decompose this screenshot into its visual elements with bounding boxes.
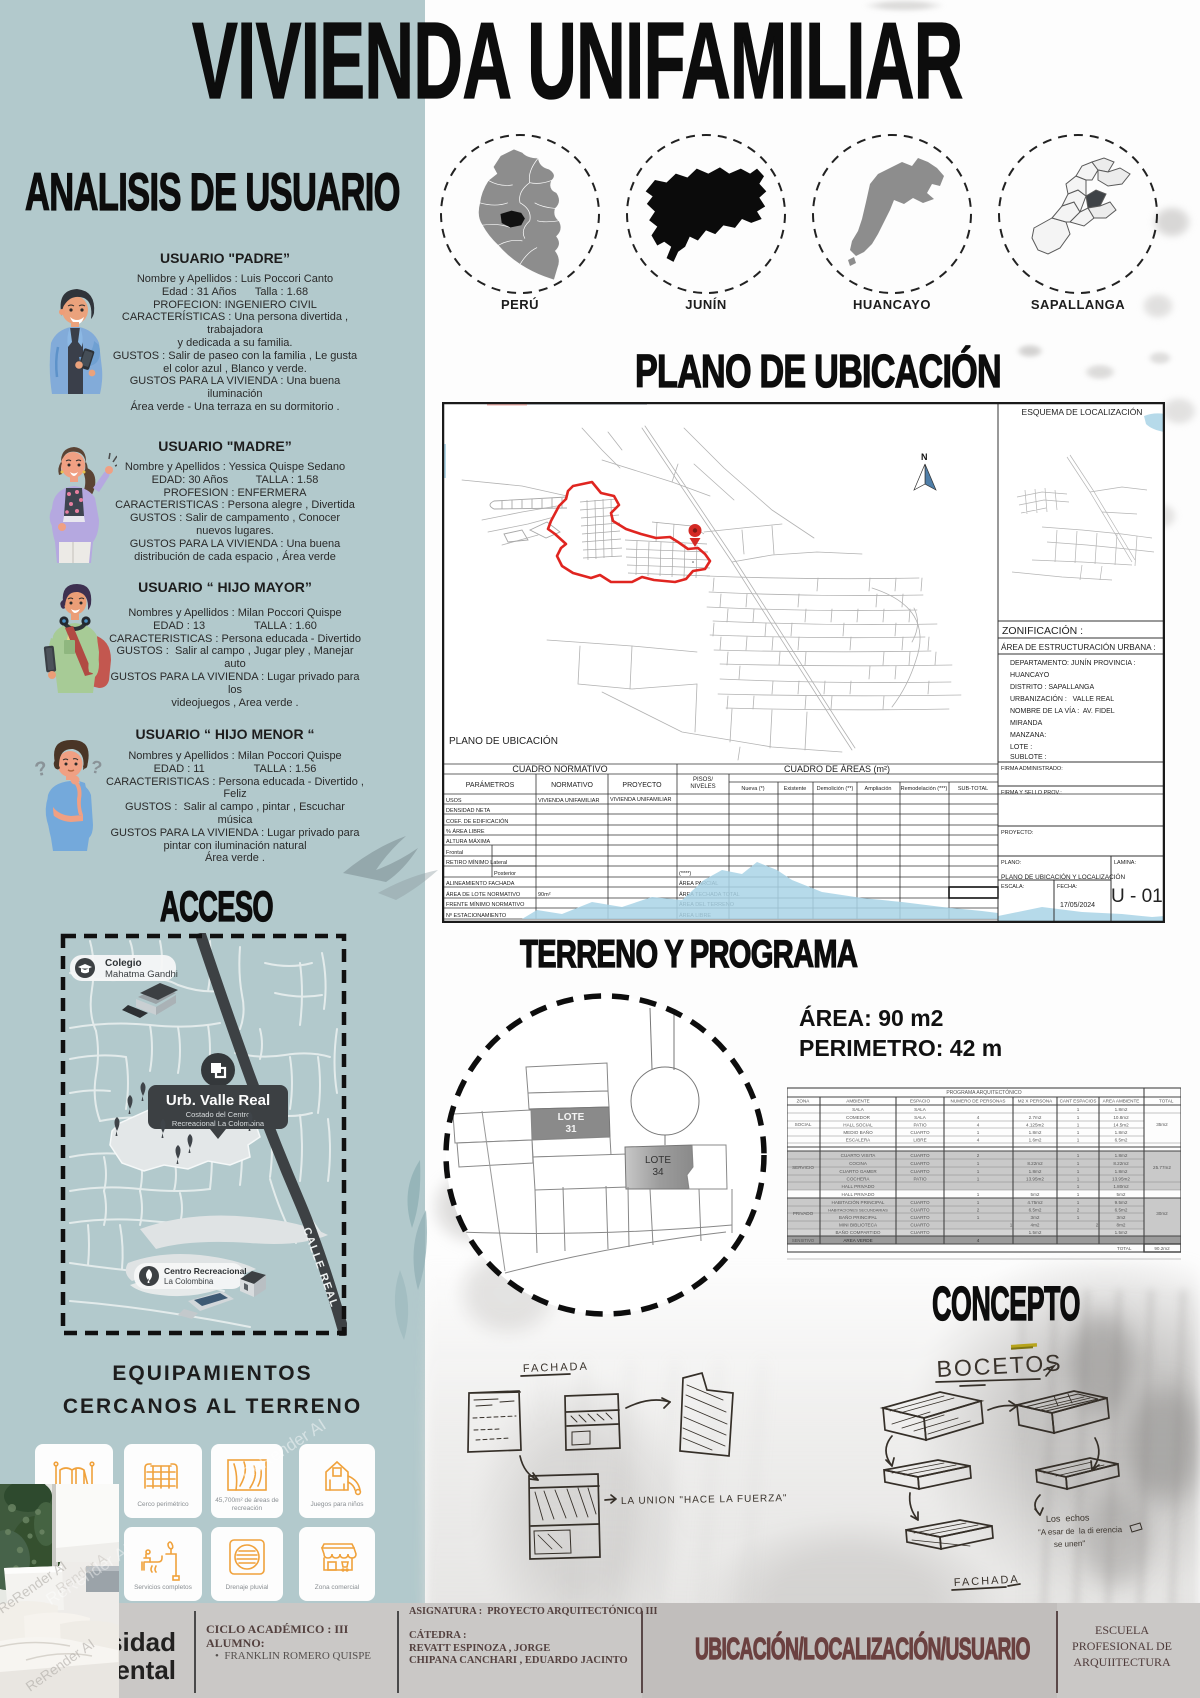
svg-text:1.8m2: 1.8m2 <box>1115 1130 1128 1135</box>
svg-text:AREA VERDE: AREA VERDE <box>843 1238 872 1243</box>
svg-text:recreación: recreación <box>232 1505 263 1512</box>
svg-text:DENSIDAD NETA: DENSIDAD NETA <box>446 808 491 814</box>
svg-text:FECHA:: FECHA: <box>1057 884 1078 890</box>
svg-text:ESCALA:: ESCALA: <box>1001 884 1025 890</box>
svg-text:1: 1 <box>1077 1107 1080 1112</box>
svg-text:1.8m2: 1.8m2 <box>1029 1130 1042 1135</box>
svg-text:2.7m2: 2.7m2 <box>1029 1115 1042 1120</box>
svg-text:1: 1 <box>977 1177 980 1182</box>
svg-text:Nº ESTACIONAMIENTO: Nº ESTACIONAMIENTO <box>446 912 507 919</box>
svg-text:1: 1 <box>1010 1223 1013 1228</box>
svg-text:1: 1 <box>1077 1200 1080 1205</box>
svg-text:2: 2 <box>977 1153 980 1158</box>
svg-text:6.5m2: 6.5m2 <box>1115 1138 1128 1143</box>
svg-text:SERVICIO: SERVICIO <box>792 1165 814 1170</box>
svg-text:Colegio: Colegio <box>105 958 142 969</box>
svg-text:30m2: 30m2 <box>1156 1211 1168 1216</box>
svg-text:1.8m2: 1.8m2 <box>1115 1169 1128 1174</box>
svg-text:NORMATIVO: NORMATIVO <box>551 782 593 789</box>
svg-text:Existente: Existente <box>784 786 807 792</box>
svg-text:CUARTO: CUARTO <box>910 1208 930 1213</box>
svg-text:DISTRITO : SAPALLANGA: DISTRITO : SAPALLANGA <box>1010 684 1094 691</box>
svg-text:1: 1 <box>1077 1177 1080 1182</box>
svg-text:1: 1 <box>1077 1161 1080 1166</box>
svg-text:1.8m2: 1.8m2 <box>1115 1107 1128 1112</box>
svg-text:CUARTO: CUARTO <box>910 1223 930 1228</box>
svg-text:17/05/2024: 17/05/2024 <box>1060 902 1095 909</box>
svg-text:1.5m2: 1.5m2 <box>1029 1230 1042 1235</box>
svg-text:Centro Recreacional: Centro Recreacional <box>164 1266 247 1276</box>
svg-text:Zona comercial: Zona comercial <box>315 1584 360 1591</box>
svg-text:Nueva (*): Nueva (*) <box>741 786 764 792</box>
svg-text:13.95m2: 13.95m2 <box>1112 1177 1130 1182</box>
svg-text:?: ? <box>35 757 49 781</box>
svg-text:ESPACIO: ESPACIO <box>910 1099 931 1104</box>
svg-text:Ampliación: Ampliación <box>865 786 892 792</box>
svg-text:CUARTO: CUARTO <box>910 1230 930 1235</box>
svg-text:SUBLOTE :: SUBLOTE : <box>1010 754 1047 761</box>
svg-text:BOCETOS: BOCETOS <box>936 1349 1063 1382</box>
svg-text:Costado del Centro: Costado del Centro <box>186 1110 251 1119</box>
svg-text:LAMINA:: LAMINA: <box>1114 860 1136 866</box>
svg-text:se unen": se unen" <box>1054 1539 1086 1549</box>
svg-text:1: 1 <box>977 1192 980 1197</box>
svg-text:SALA: SALA <box>852 1107 865 1112</box>
svg-text:HALL PRIVADO: HALL PRIVADO <box>842 1192 875 1197</box>
svg-text:PRIVADO: PRIVADO <box>793 1211 814 1216</box>
svg-text:1: 1 <box>1077 1184 1080 1189</box>
svg-text:TOTAL: TOTAL <box>1117 1246 1132 1251</box>
svg-text:Drenaje pluvial: Drenaje pluvial <box>226 1584 270 1591</box>
svg-text:1: 1 <box>1077 1130 1080 1135</box>
svg-text:NOMBRE DE LA VÍA : AV. FIDEL: NOMBRE DE LA VÍA : AV. FIDEL <box>1010 706 1115 715</box>
svg-text:6.5m2: 6.5m2 <box>1029 1208 1042 1213</box>
svg-text:"A esar de la di erencia: "A esar de la di erencia <box>1038 1525 1123 1537</box>
svg-text:1.8m2: 1.8m2 <box>1115 1153 1128 1158</box>
svg-text:COEF. DE EDIFICACIÓN: COEF. DE EDIFICACIÓN <box>446 818 508 825</box>
svg-text:PATIO: PATIO <box>913 1177 927 1182</box>
svg-text:SALA: SALA <box>914 1115 927 1120</box>
svg-text:LOTE: LOTE <box>645 1155 671 1166</box>
svg-text:CUARTO: CUARTO <box>910 1161 930 1166</box>
svg-text:8.22m2: 8.22m2 <box>1113 1161 1129 1166</box>
svg-text:PROYECTO:: PROYECTO: <box>1001 830 1034 836</box>
svg-text:HALL PRIVADO: HALL PRIVADO <box>842 1184 875 1189</box>
svg-text:4: 4 <box>977 1115 980 1120</box>
svg-text:PLANO DE UBICACIÓN: PLANO DE UBICACIÓN <box>449 734 558 747</box>
svg-text:4.75m2: 4.75m2 <box>1027 1200 1043 1205</box>
svg-text:ALINEAMIENTO FACHADA: ALINEAMIENTO FACHADA <box>446 881 515 887</box>
svg-text:CUARTO: CUARTO <box>910 1130 930 1135</box>
svg-text:FRENTE MÍNIMO NORMATIVO: FRENTE MÍNIMO NORMATIVO <box>446 901 525 908</box>
svg-text:?: ? <box>89 756 103 778</box>
svg-text:URBANIZACIÓN : VALLE REAL: URBANIZACIÓN : VALLE REAL <box>1010 694 1114 703</box>
svg-text:DEPARTAMENTO: JUNÍN PROVINCIA: DEPARTAMENTO: JUNÍN PROVINCIA : <box>1010 658 1136 667</box>
svg-text:8.22m2: 8.22m2 <box>1027 1161 1043 1166</box>
svg-text:4: 4 <box>977 1238 980 1243</box>
svg-text:Los echos: Los echos <box>1046 1512 1090 1524</box>
svg-text:HABITACIÓN PRINCIPAL: HABITACIÓN PRINCIPAL <box>832 1199 885 1205</box>
svg-text:CUARTO: CUARTO <box>910 1215 930 1220</box>
svg-text:35m2: 35m2 <box>1156 1122 1168 1127</box>
svg-text:9.5m2: 9.5m2 <box>1115 1200 1128 1205</box>
svg-text:1: 1 <box>977 1200 980 1205</box>
svg-text:25.77m2: 25.77m2 <box>1153 1165 1171 1170</box>
svg-text:Posterior: Posterior <box>494 871 516 877</box>
svg-text:90.2m2: 90.2m2 <box>1154 1246 1170 1251</box>
svg-text:1.80m2: 1.80m2 <box>1113 1184 1129 1189</box>
svg-text:ZONIFICACIÓN :: ZONIFICACIÓN : <box>1002 624 1083 637</box>
svg-text:ZONA: ZONA <box>797 1099 811 1104</box>
svg-text:10.8m2: 10.8m2 <box>1113 1115 1129 1120</box>
svg-text:1: 1 <box>977 1161 980 1166</box>
svg-text:HALL SOCIAL: HALL SOCIAL <box>843 1123 873 1128</box>
svg-text:1: 1 <box>1077 1115 1080 1120</box>
svg-text:TOTAL: TOTAL <box>1159 1099 1174 1104</box>
svg-text:PLANO:: PLANO: <box>1001 860 1022 866</box>
svg-text:MANZANA:: MANZANA: <box>1010 732 1046 739</box>
svg-text:La Colombina: La Colombina <box>164 1277 214 1286</box>
svg-text:CANT ESPACIOS: CANT ESPACIOS <box>1060 1099 1097 1104</box>
svg-text:45,700m² de áreas de: 45,700m² de áreas de <box>215 1497 279 1504</box>
svg-text:BAÑO PRINCIPAL: BAÑO PRINCIPAL <box>839 1214 878 1220</box>
svg-text:Frontal: Frontal <box>446 850 463 856</box>
svg-text:ÁREA DE LOTE NORMATIVO: ÁREA DE LOTE NORMATIVO <box>446 891 521 898</box>
svg-text:1.5m2: 1.5m2 <box>1115 1230 1128 1235</box>
svg-text:FACHADA: FACHADA <box>954 1574 1021 1589</box>
svg-text:MINI BIBLIOTECA: MINI BIBLIOTECA <box>839 1223 878 1228</box>
svg-text:FIRMA ADMINISTRADO:: FIRMA ADMINISTRADO: <box>1001 766 1063 772</box>
svg-text:USOS: USOS <box>446 798 462 804</box>
svg-text:HABITACIONES SECUNDARIAS: HABITACIONES SECUNDARIAS <box>828 1208 888 1213</box>
svg-text:NIVELES: NIVELES <box>690 784 715 790</box>
svg-text:CALLE REAL: CALLE REAL <box>300 1226 340 1310</box>
svg-text:% ÁREA LIBRE: % ÁREA LIBRE <box>446 828 485 835</box>
svg-text:CUARTO: CUARTO <box>910 1200 930 1205</box>
svg-text:AMBIENTE: AMBIENTE <box>846 1099 869 1104</box>
svg-text:Remodelación (***): Remodelación (***) <box>901 786 948 792</box>
svg-text:4: 4 <box>977 1123 980 1128</box>
svg-text:CUARTO: CUARTO <box>910 1153 930 1158</box>
svg-text:CUARTO GAMER: CUARTO GAMER <box>839 1169 877 1174</box>
svg-text:FACHADA: FACHADA <box>523 1361 589 1375</box>
svg-text:PLANO DE UBICACIÓN Y LOCALIZAC: PLANO DE UBICACIÓN Y LOCALIZACIÓN <box>1001 872 1125 881</box>
svg-text:14.5m2: 14.5m2 <box>1113 1123 1129 1128</box>
svg-text:(****): (****) <box>679 871 691 877</box>
svg-text:31: 31 <box>565 1124 577 1135</box>
svg-text:1: 1 <box>977 1169 980 1174</box>
svg-text:CUARTO VISITA: CUARTO VISITA <box>841 1153 877 1158</box>
svg-text:PISOS/: PISOS/ <box>693 777 713 783</box>
svg-text:N: N <box>921 452 928 462</box>
svg-text:2: 2 <box>977 1208 980 1213</box>
svg-text:5m2: 5m2 <box>1031 1192 1040 1197</box>
svg-text:PROGRAMA ARQUITECTÓNICO: PROGRAMA ARQUITECTÓNICO <box>946 1089 1021 1096</box>
svg-text:LA UNION "HACE LA FUERZA": LA UNION "HACE LA FUERZA" <box>621 1493 788 1507</box>
svg-text:4: 4 <box>977 1138 980 1143</box>
svg-text:M2 X PERSONA: M2 X PERSONA <box>1018 1099 1053 1104</box>
svg-text:ÁREA DE ESTRUCTURACIÓN URBANA: ÁREA DE ESTRUCTURACIÓN URBANA : <box>1001 642 1156 652</box>
svg-text:SUB-TOTAL: SUB-TOTAL <box>958 786 988 792</box>
svg-text:ESCALERA: ESCALERA <box>846 1138 871 1143</box>
svg-text:MIRANDA: MIRANDA <box>1010 720 1043 727</box>
svg-text:1: 1 <box>1077 1192 1080 1197</box>
svg-text:13.95m2: 13.95m2 <box>1026 1177 1044 1182</box>
svg-text:3m2: 3m2 <box>1031 1215 1040 1220</box>
svg-text:LIBRE: LIBRE <box>913 1138 926 1143</box>
svg-text:PARÁMETROS: PARÁMETROS <box>466 780 515 789</box>
svg-text:COCINA: COCINA <box>849 1161 868 1166</box>
svg-text:ALTURA MÁXIMA: ALTURA MÁXIMA <box>446 838 491 845</box>
svg-text:1: 1 <box>1077 1123 1080 1128</box>
svg-text:1: 1 <box>1077 1153 1080 1158</box>
svg-text:1: 1 <box>1077 1169 1080 1174</box>
svg-text:FIRMA Y SELLO PROV.:: FIRMA Y SELLO PROV.: <box>1001 790 1062 796</box>
svg-text:BAÑO COMPARTIDO: BAÑO COMPARTIDO <box>835 1229 880 1235</box>
svg-text:AREA AMBIENTE: AREA AMBIENTE <box>1103 1099 1140 1104</box>
svg-text:SALA: SALA <box>914 1107 927 1112</box>
svg-text:SENSITIVO: SENSITIVO <box>792 1238 815 1243</box>
svg-text:Demolición (**): Demolición (**) <box>817 786 854 792</box>
svg-text:LOTE: LOTE <box>558 1112 585 1123</box>
svg-text:SOCIAL: SOCIAL <box>795 1122 812 1127</box>
svg-text:8m2: 8m2 <box>1117 1223 1126 1228</box>
svg-text:CUARTO: CUARTO <box>910 1169 930 1174</box>
svg-text:PROYECTO: PROYECTO <box>622 782 662 789</box>
svg-text:4.125m2: 4.125m2 <box>1026 1123 1044 1128</box>
svg-text:CUADRO DE ÁREAS (m²): CUADRO DE ÁREAS (m²) <box>784 764 890 774</box>
svg-text:5m2: 5m2 <box>1117 1192 1126 1197</box>
svg-text:VIVIENDA UNIFAMILIAR: VIVIENDA UNIFAMILIAR <box>610 797 671 803</box>
svg-text:1: 1 <box>977 1215 980 1220</box>
svg-text:Cerco perimétrico: Cerco perimétrico <box>137 1501 189 1508</box>
svg-text:U - 01: U - 01 <box>1111 886 1163 907</box>
svg-text:MEDIO BAÑO: MEDIO BAÑO <box>843 1129 873 1135</box>
svg-text:Urb. Valle Real: Urb. Valle Real <box>166 1092 270 1109</box>
svg-text:ESQUEMA DE LOCALIZACIÓN: ESQUEMA DE LOCALIZACIÓN <box>1022 407 1143 417</box>
svg-text:1: 1 <box>1077 1215 1080 1220</box>
svg-text:1: 1 <box>977 1130 980 1135</box>
svg-text:1: 1 <box>1077 1138 1080 1143</box>
svg-text:COMEDOR: COMEDOR <box>846 1115 871 1120</box>
svg-text:NUMERO DE PERSONAS: NUMERO DE PERSONAS <box>951 1099 1006 1104</box>
svg-text:Mahatma Gandhi: Mahatma Gandhi <box>105 969 178 980</box>
svg-text:1.6m2: 1.6m2 <box>1029 1138 1042 1143</box>
svg-text:VIVIENDA UNIFAMILIAR: VIVIENDA UNIFAMILIAR <box>538 798 599 804</box>
svg-text:6.5m2: 6.5m2 <box>1115 1208 1128 1213</box>
svg-text:COCHERA: COCHERA <box>847 1177 871 1182</box>
svg-text:34: 34 <box>652 1167 664 1178</box>
svg-text:CUADRO NORMATIVO: CUADRO NORMATIVO <box>512 764 607 774</box>
svg-text:Servicios completos: Servicios completos <box>134 1584 193 1591</box>
svg-text:HUANCAYO: HUANCAYO <box>1010 672 1050 679</box>
svg-text:LOTE :: LOTE : <box>1010 744 1032 751</box>
svg-text:2: 2 <box>1077 1208 1080 1213</box>
svg-text:2: 2 <box>1096 1223 1099 1228</box>
svg-text:3m2: 3m2 <box>1117 1215 1126 1220</box>
svg-text:90m²: 90m² <box>538 892 551 898</box>
svg-text:Juegos para niños: Juegos para niños <box>310 1501 364 1508</box>
svg-text:RETIRO MÍNIMO Lateral: RETIRO MÍNIMO Lateral <box>446 859 507 866</box>
svg-text:1.8m2: 1.8m2 <box>1029 1169 1042 1174</box>
svg-text:PATIO: PATIO <box>913 1123 927 1128</box>
svg-text:4m2: 4m2 <box>1031 1223 1040 1228</box>
